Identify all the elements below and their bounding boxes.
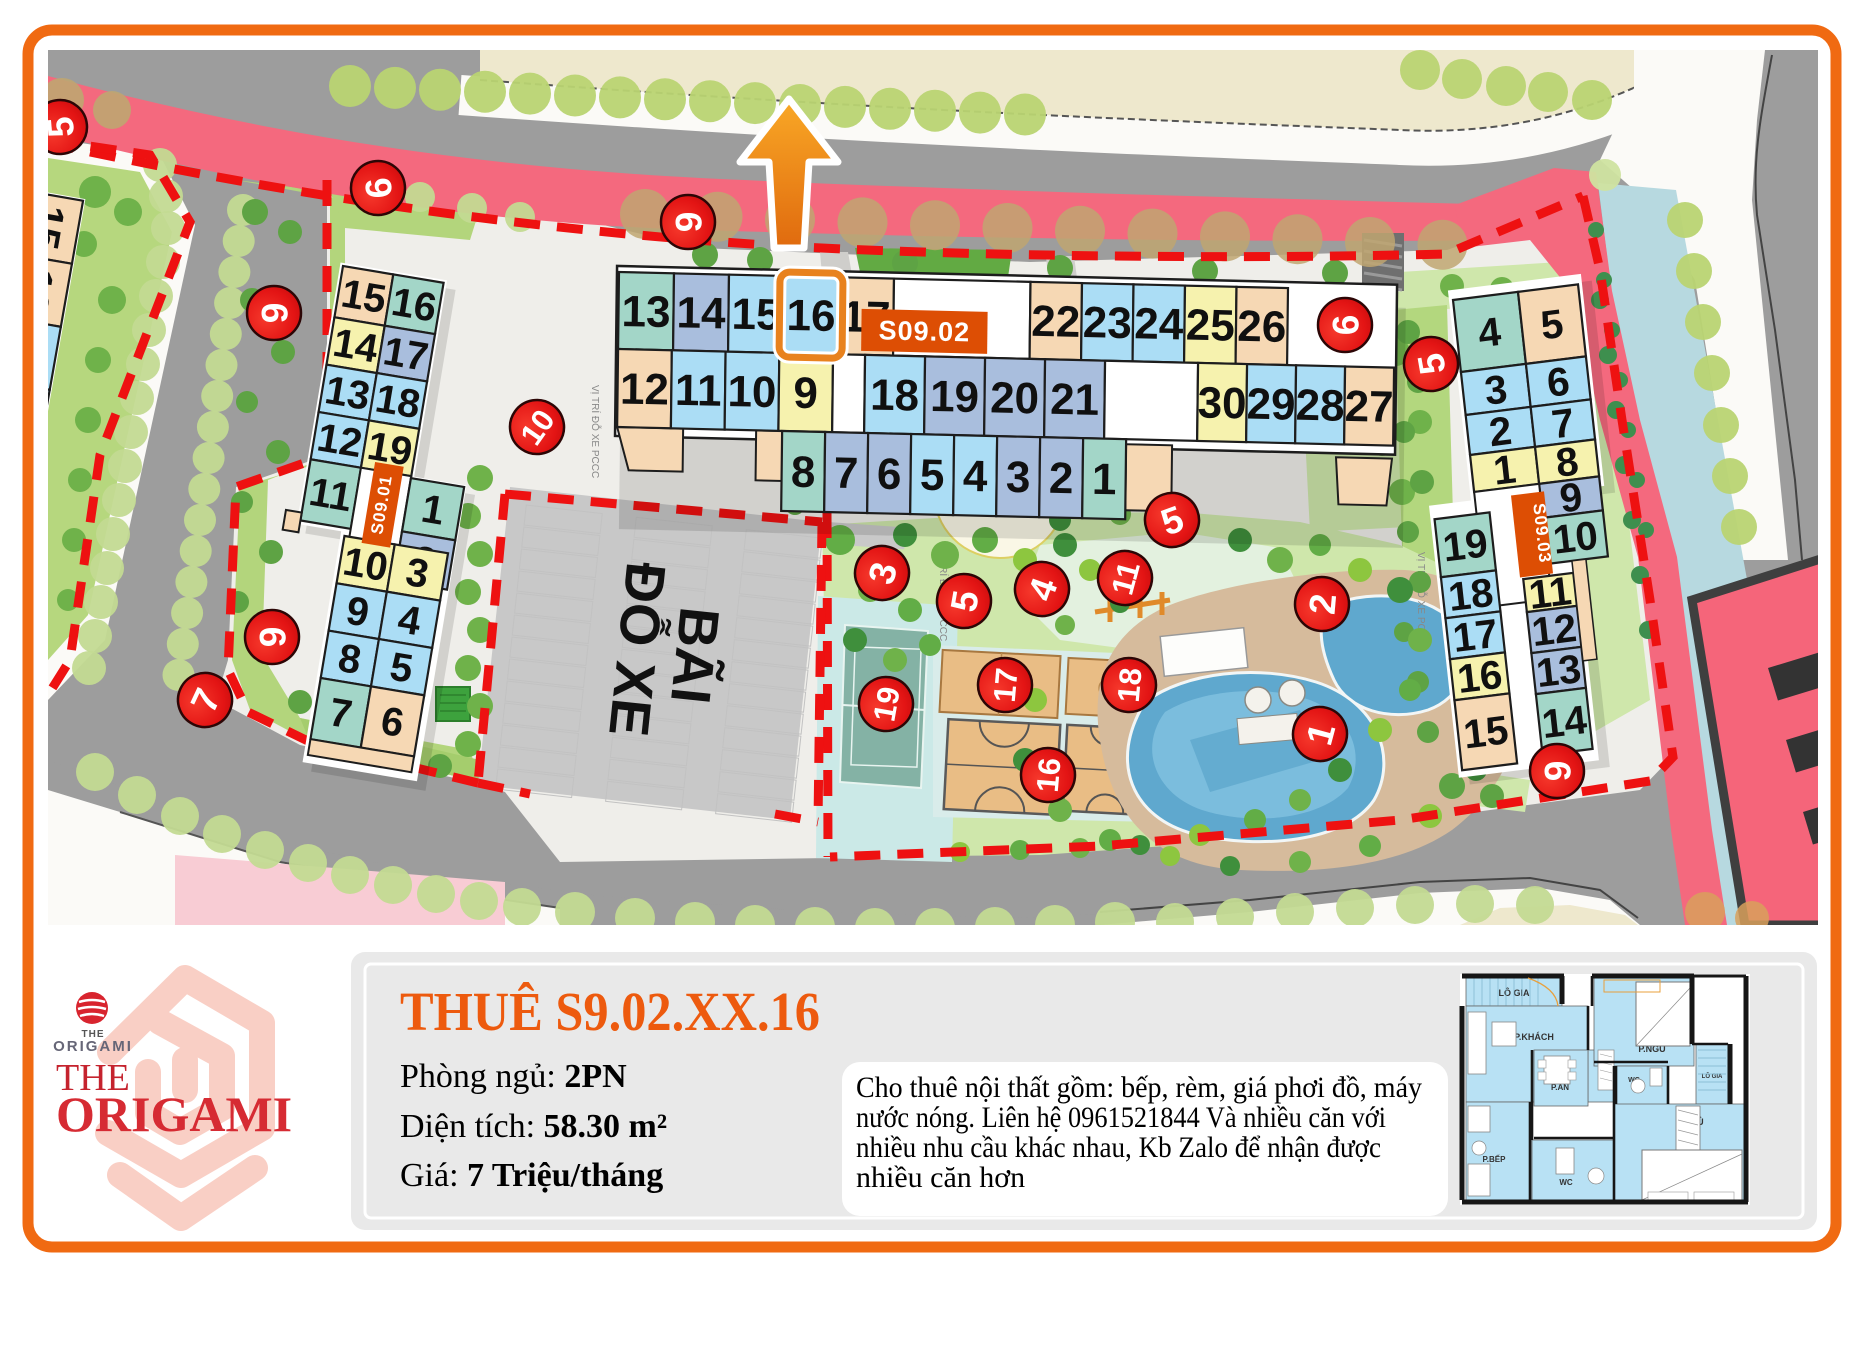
svg-text:12: 12 — [620, 364, 670, 414]
svg-text:21: 21 — [1050, 375, 1100, 425]
svg-text:20: 20 — [990, 373, 1040, 423]
svg-text:5: 5 — [920, 451, 945, 501]
svg-text:S09.02: S09.02 — [878, 315, 970, 347]
svg-text:Phòng ngủ: 2PN: Phòng ngủ: 2PN — [400, 1058, 627, 1095]
svg-text:9: 9 — [254, 303, 295, 324]
svg-text:8: 8 — [791, 448, 816, 498]
svg-text:9: 9 — [793, 369, 818, 419]
svg-text:3: 3 — [1006, 453, 1031, 503]
svg-text:6: 6 — [877, 450, 902, 500]
svg-text:10: 10 — [340, 539, 391, 590]
svg-text:THUÊ S9.02.XX.16: THUÊ S9.02.XX.16 — [400, 981, 820, 1042]
svg-text:7: 7 — [834, 449, 859, 499]
svg-text:18: 18 — [1111, 666, 1149, 703]
svg-text:19: 19 — [930, 372, 980, 422]
svg-text:P.BẾP: P.BẾP — [1483, 1154, 1507, 1164]
svg-text:2: 2 — [1301, 592, 1344, 616]
svg-text:16: 16 — [388, 280, 439, 331]
svg-text:11: 11 — [306, 470, 355, 520]
svg-text:2: 2 — [1049, 454, 1074, 504]
svg-text:23: 23 — [1083, 298, 1133, 348]
svg-text:ORIGAMI: ORIGAMI — [53, 1038, 133, 1055]
svg-text:13: 13 — [621, 287, 671, 337]
svg-text:14: 14 — [1540, 697, 1590, 747]
svg-text:11: 11 — [675, 366, 722, 416]
svg-text:25: 25 — [1186, 301, 1236, 351]
svg-text:15: 15 — [338, 271, 389, 322]
svg-text:16: 16 — [786, 291, 836, 341]
svg-text:18: 18 — [372, 377, 423, 428]
svg-text:30: 30 — [1197, 378, 1247, 428]
svg-text:WC: WC — [1559, 1178, 1573, 1187]
svg-text:LÔ GIA: LÔ GIA — [1702, 1072, 1723, 1080]
svg-text:9: 9 — [668, 212, 709, 233]
svg-text:14: 14 — [330, 321, 382, 372]
svg-text:19: 19 — [866, 684, 906, 724]
svg-text:17: 17 — [380, 329, 431, 380]
svg-text:9: 9 — [1537, 761, 1578, 782]
svg-text:18: 18 — [870, 370, 920, 420]
svg-text:14: 14 — [676, 288, 726, 338]
svg-text:28: 28 — [1295, 381, 1345, 431]
svg-text:17: 17 — [987, 666, 1025, 703]
svg-text:15: 15 — [1461, 707, 1510, 757]
svg-text:27: 27 — [1344, 382, 1394, 432]
svg-text:6: 6 — [357, 176, 400, 200]
svg-text:24: 24 — [1134, 299, 1184, 349]
svg-text:1: 1 — [1092, 455, 1117, 505]
svg-text:Cho thuê nội thất gồm: bếp, rè: Cho thuê nội thất gồm: bếp, rèm, giá phơ… — [856, 1071, 1422, 1104]
svg-text:P.KHÁCH: P.KHÁCH — [1514, 1032, 1554, 1042]
svg-text:Diện tích: 58.30 m²: Diện tích: 58.30 m² — [400, 1108, 667, 1145]
svg-text:16: 16 — [1030, 756, 1068, 793]
svg-text:nhiều căn hơn: nhiều căn hơn — [856, 1161, 1025, 1194]
svg-text:Giá: 7 Triệu/tháng: Giá: 7 Triệu/tháng — [400, 1157, 663, 1194]
svg-text:13: 13 — [322, 368, 373, 419]
svg-text:ORIGAMI: ORIGAMI — [56, 1086, 292, 1142]
svg-text:9: 9 — [252, 627, 293, 648]
svg-text:29: 29 — [1246, 380, 1296, 430]
svg-text:12: 12 — [314, 415, 365, 466]
svg-text:26: 26 — [1237, 302, 1287, 352]
svg-text:6: 6 — [1325, 315, 1366, 336]
svg-text:4: 4 — [963, 452, 989, 502]
svg-text:nước nóng. Liên hệ 0961521844: nước nóng. Liên hệ 0961521844 Và nhiều c… — [856, 1101, 1386, 1134]
svg-text:VỊ TRÍ ĐỖ XE PCCC: VỊ TRÍ ĐỖ XE PCCC — [589, 385, 602, 478]
svg-text:19: 19 — [1441, 520, 1490, 570]
svg-text:nhiều nhu cầu khác nhau, Kb Za: nhiều nhu cầu khác nhau, Kb Zalo để nhận… — [856, 1131, 1381, 1164]
svg-text:10: 10 — [1551, 513, 1600, 563]
svg-text:10: 10 — [727, 367, 777, 417]
svg-text:22: 22 — [1031, 297, 1081, 347]
